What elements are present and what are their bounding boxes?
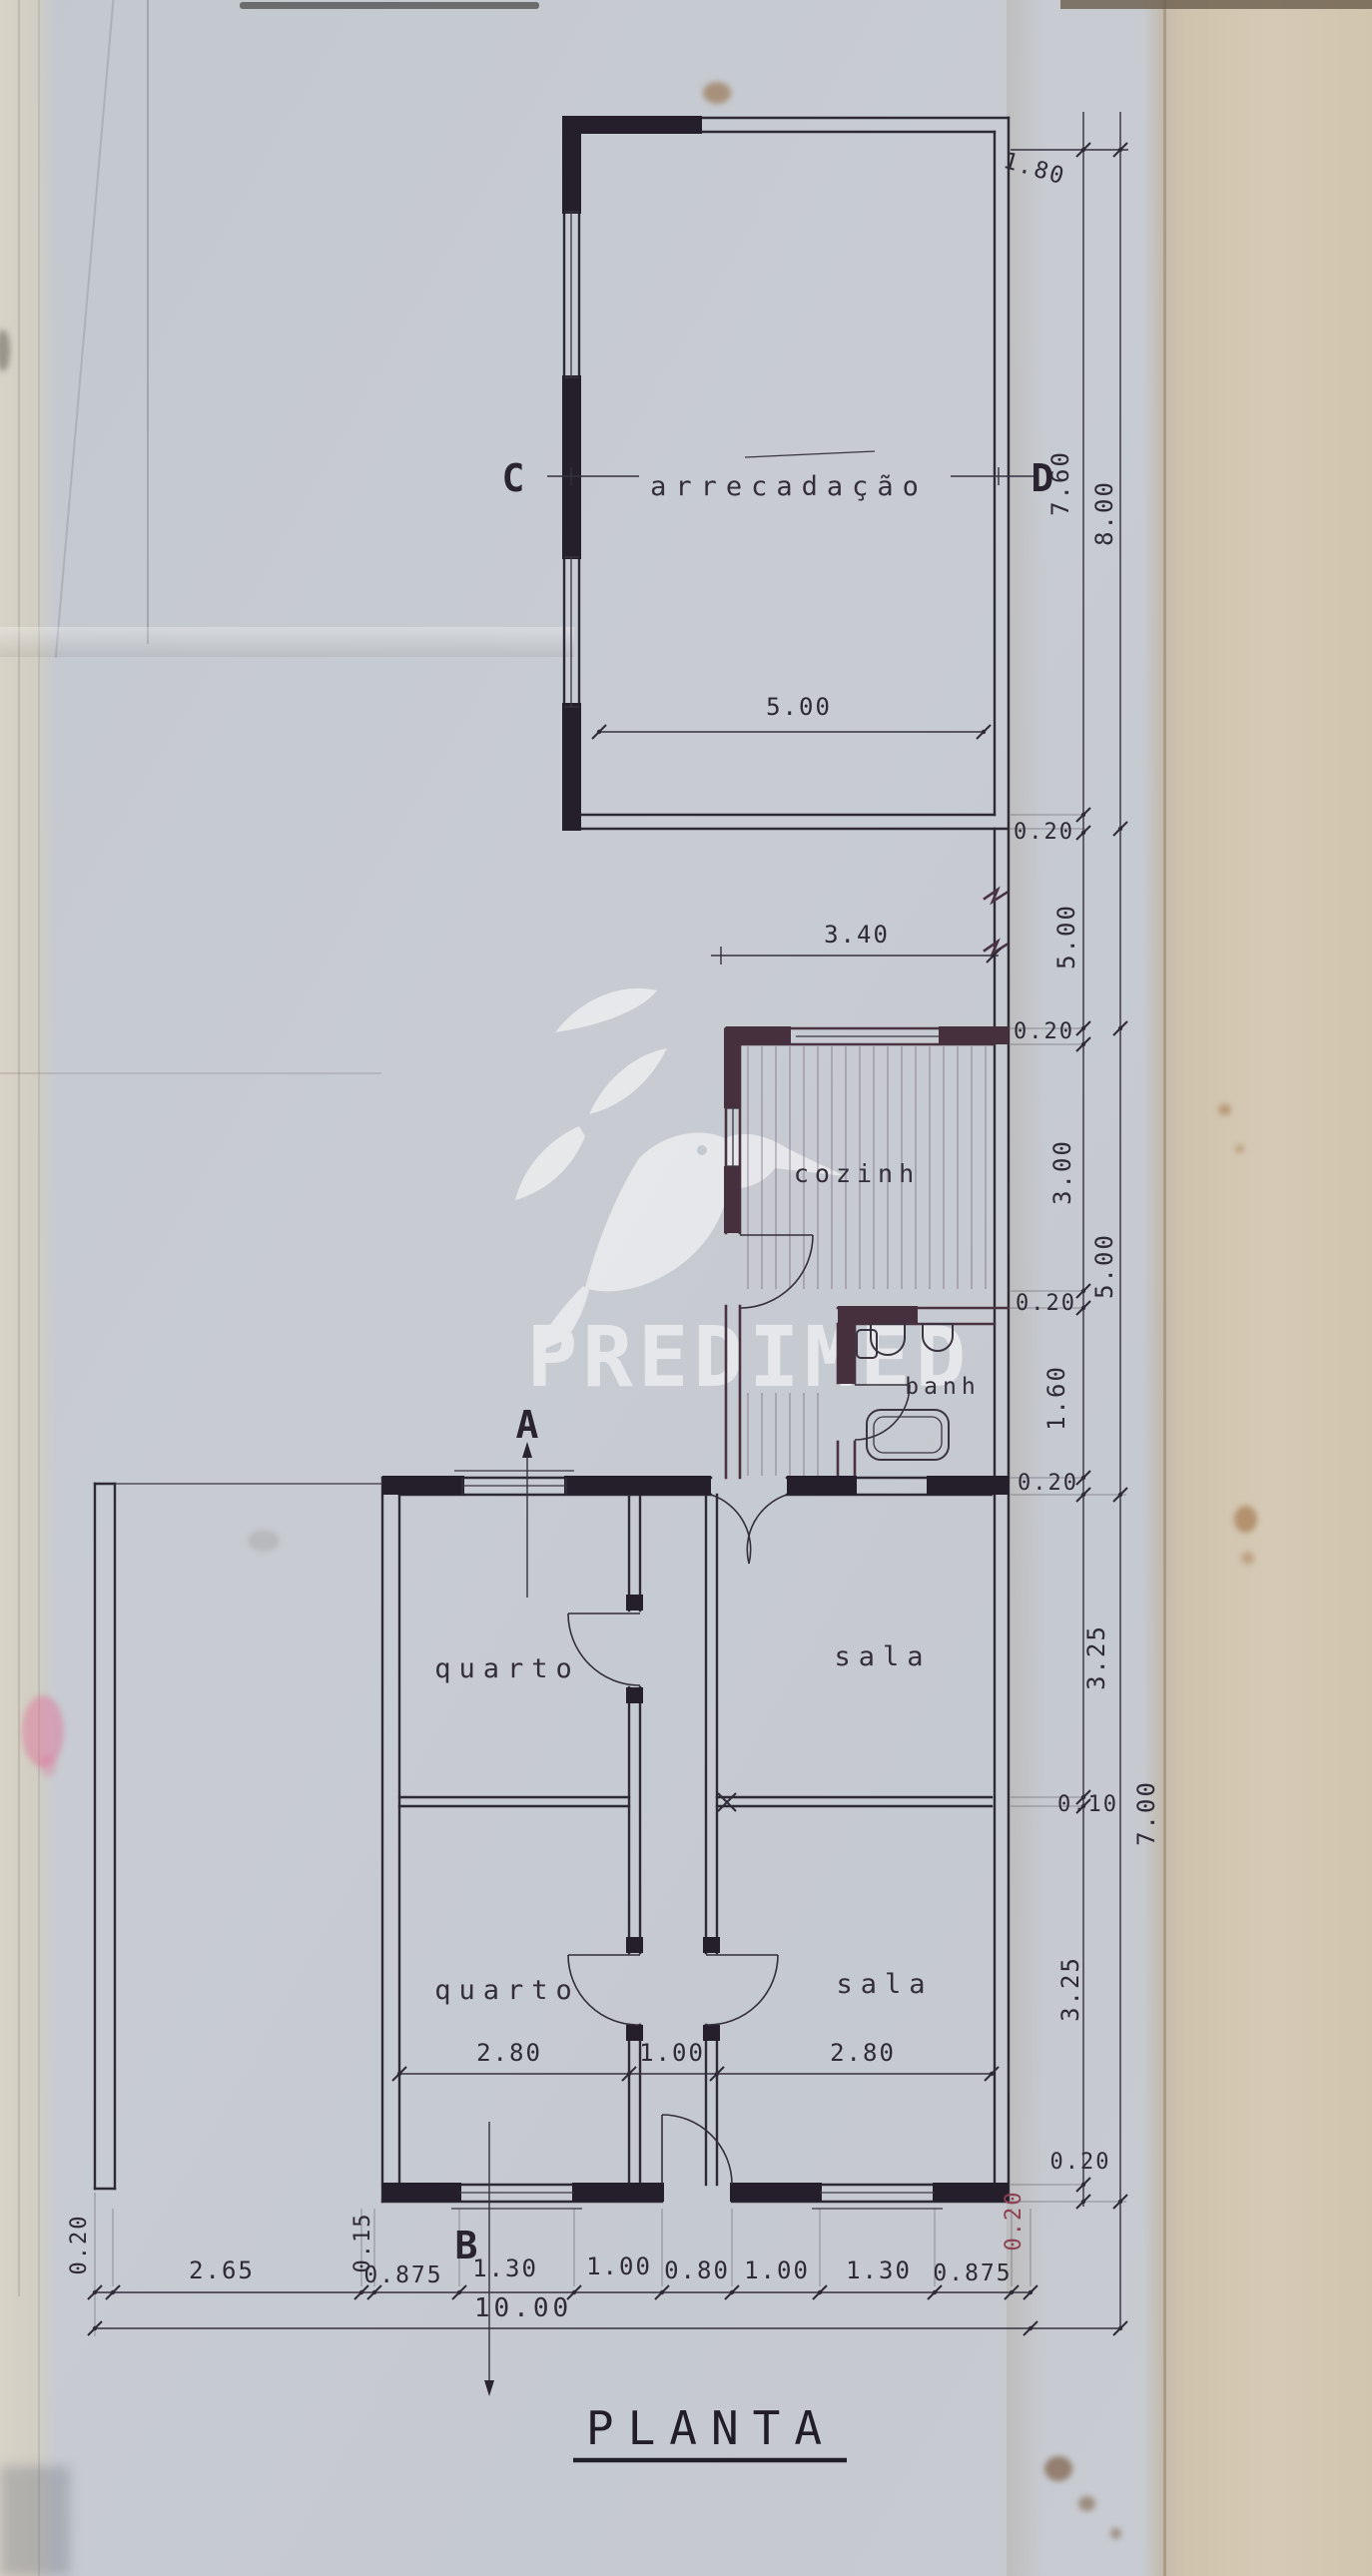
main-house-walls bbox=[382, 1471, 1009, 2209]
dim-bottom-8: 1.30 bbox=[846, 2256, 912, 2284]
room-label-living-lower: sala bbox=[836, 1969, 933, 2000]
room-label-bath: banh bbox=[905, 1374, 980, 1400]
dim-bottom-4: 1.30 bbox=[472, 2254, 538, 2282]
wall-break-mark bbox=[985, 942, 1007, 954]
dim-right-inner-6: 1.60 bbox=[1042, 1365, 1070, 1431]
entry-door-arc-right bbox=[747, 1495, 787, 1564]
scanned-floor-plan-page: PREDIMED bbox=[0, 0, 1372, 2576]
dim-right-outer-1: 5.00 bbox=[1090, 1233, 1118, 1299]
page-title: PLANTA bbox=[586, 2401, 836, 2455]
dim-total-width: 10.00 bbox=[474, 2293, 572, 2323]
dim-right-inner-11: 0.20 bbox=[1050, 2150, 1111, 2175]
room-label-storage: arrecadação bbox=[650, 471, 928, 502]
floorplan-drawing: PREDIMED bbox=[0, 0, 1372, 2576]
section-b-arrow bbox=[484, 2380, 494, 2396]
dim-right-inner-7: 0.20 bbox=[1018, 1471, 1078, 1496]
dim-bottom-5: 1.00 bbox=[586, 2253, 652, 2280]
dim-right-outer-0: 8.00 bbox=[1090, 480, 1118, 546]
dim-right-inner-0: 7.60 bbox=[1046, 450, 1074, 516]
dim-width-bedroom: 2.80 bbox=[476, 2039, 542, 2067]
room-label-bedroom-upper: quarto bbox=[434, 1653, 580, 1684]
dim-right-inner-3: 0.20 bbox=[1014, 1019, 1074, 1044]
room-label-living-upper: sala bbox=[834, 1641, 931, 1672]
hummingbird-wing-lower bbox=[515, 1126, 585, 1200]
hummingbird-crest bbox=[555, 988, 657, 1032]
dim-right-inner-2: 5.00 bbox=[1052, 904, 1080, 969]
dim-right-inner-1: 0.20 bbox=[1014, 820, 1074, 845]
dim-width-living: 2.80 bbox=[830, 2039, 896, 2067]
drawing-title: PLANTA bbox=[573, 2401, 847, 2460]
dim-bottom-1: 2.65 bbox=[189, 2256, 255, 2284]
dim-storage-width: 5.00 bbox=[766, 693, 832, 721]
dim-right-inner-5: 0.20 bbox=[1016, 1291, 1076, 1316]
wall-break-mark bbox=[985, 890, 1007, 902]
boundary-wall bbox=[95, 1484, 382, 2189]
hummingbird-wing-upper bbox=[589, 1048, 667, 1114]
dim-top-offset: 1.80 bbox=[1001, 148, 1068, 190]
room-label-bedroom-lower: quarto bbox=[434, 1975, 580, 2006]
hummingbird-eye bbox=[697, 1145, 707, 1155]
dim-right-outer-2: 7.00 bbox=[1132, 1780, 1160, 1846]
section-marker-a: A bbox=[516, 1403, 539, 1447]
room-label-kitchen: cozinh bbox=[794, 1159, 920, 1188]
dim-right-inner-4: 3.00 bbox=[1048, 1139, 1076, 1205]
dim-bottom-6: 0.80 bbox=[664, 2256, 730, 2284]
back-door-arc bbox=[662, 2115, 732, 2185]
wall-x-mark bbox=[718, 1793, 736, 1811]
dim-width-hall: 1.00 bbox=[639, 2039, 705, 2067]
dim-right-inner-8: 3.25 bbox=[1082, 1624, 1110, 1690]
dim-right-inner-10: 3.25 bbox=[1056, 1956, 1084, 2022]
living-lower-door-arc bbox=[706, 1955, 778, 2025]
section-marker-c: C bbox=[502, 456, 525, 500]
dim-bottom-7: 1.00 bbox=[744, 2256, 810, 2284]
dim-right-inner-9: 0.10 bbox=[1057, 1792, 1118, 1817]
dim-bottom-0: 0.20 bbox=[67, 2215, 92, 2275]
floor-hatching bbox=[743, 1046, 993, 1476]
dim-bottom-3: 0.875 bbox=[363, 2262, 442, 2288]
dim-annex-width: 3.40 bbox=[824, 921, 890, 949]
bathtub-inner bbox=[874, 1417, 942, 1453]
dim-bottom-10: 0.20 bbox=[1002, 2191, 1027, 2252]
dim-bottom-9: 0.875 bbox=[933, 2260, 1012, 2286]
